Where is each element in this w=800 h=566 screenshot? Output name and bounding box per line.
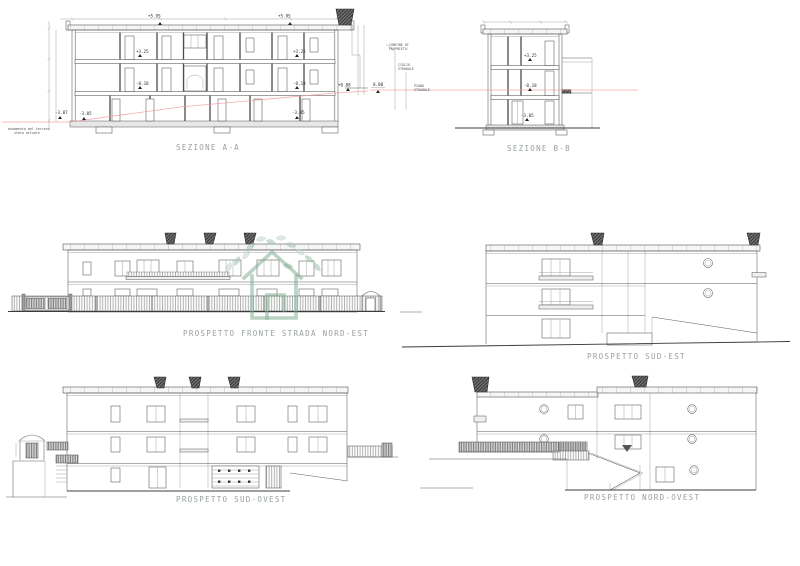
- terrain-slope-line: [290, 473, 348, 481]
- wall-right: [335, 30, 338, 122]
- balcony-slab: [539, 276, 593, 280]
- roof-slab: [63, 244, 360, 250]
- roof-slab: [63, 387, 348, 393]
- dim-label: -3.05: [521, 113, 534, 118]
- chimney: [472, 377, 489, 392]
- chimney: [165, 233, 176, 244]
- chimney: [336, 9, 354, 25]
- recess-slab: [180, 419, 208, 422]
- lower-terrace: [607, 317, 757, 345]
- chimney: [632, 376, 648, 387]
- dim-label: +3.25: [293, 49, 306, 54]
- footing: [322, 127, 338, 133]
- external-stair: [588, 445, 643, 490]
- dim-label: -3.07: [55, 110, 68, 115]
- roof-slab: [486, 245, 760, 251]
- elevation-nord-ovest: PROSPETTO NORD-OVEST: [420, 376, 757, 502]
- ciglio-note-2: STRADALE: [398, 67, 414, 71]
- top-row-windows: [111, 406, 327, 422]
- dim-label: +5.95: [148, 14, 161, 19]
- chimney: [154, 377, 166, 388]
- section-openings: [112, 35, 318, 121]
- dimension-chain-right: [352, 25, 364, 95]
- stairs: [56, 466, 67, 482]
- drawing-sheet: +5.95 +5.95 +3.25 +3.25 -0.18 -0.18 +0.0…: [0, 0, 800, 566]
- floor-slab: [75, 92, 335, 96]
- dim-label: +5.95: [278, 14, 291, 19]
- chimney: [189, 377, 201, 388]
- section-aa-title: SEZIONE A-A: [176, 143, 240, 152]
- footing: [556, 130, 567, 135]
- elevation-sud-ovest: PROSPETTO SUD-OVEST: [6, 377, 398, 504]
- window-stack: [539, 259, 593, 338]
- dim-label: -3.05: [79, 111, 92, 116]
- stair-railing: [56, 455, 78, 463]
- dim-label: -0.18: [524, 83, 537, 88]
- interior-walls: [110, 33, 304, 122]
- level-dimensions: +3.25 -0.18 -3.05: [521, 53, 537, 121]
- chimney: [591, 233, 604, 245]
- garage-door: [212, 466, 259, 488]
- side-balcony-slab: [752, 273, 766, 278]
- section-bb-title: SEZIONE B-B: [507, 144, 571, 153]
- ground-line: [402, 342, 790, 348]
- dim-label: +3.25: [136, 49, 149, 54]
- elevation-nord-ovest-title: PROSPETTO NORD-OVEST: [584, 493, 700, 502]
- slatted-door: [266, 466, 281, 488]
- floor-slab: [75, 60, 335, 64]
- balcony-railing: [127, 272, 229, 277]
- annex-railing: [47, 442, 68, 450]
- balcony-slab: [539, 305, 593, 309]
- footing: [96, 127, 112, 133]
- section-aa-drawing: +5.95 +5.95 +3.25 +3.25 -0.18 -0.18 +0.0…: [2, 9, 368, 152]
- wall-left: [72, 30, 75, 122]
- foundation-slab: [70, 121, 338, 127]
- piano-note-2: STRADALE: [414, 88, 430, 92]
- mid-row-windows: [111, 437, 327, 452]
- terrace-railings: [429, 442, 589, 460]
- annex-door: [26, 443, 38, 458]
- floor-slab: [491, 66, 559, 70]
- chimney: [747, 233, 760, 245]
- roof-slab: [483, 29, 567, 34]
- chimney: [228, 377, 240, 388]
- dim-label: -0.18: [293, 81, 306, 86]
- wall-ledge: [474, 416, 486, 422]
- dim-label: -0.18: [136, 81, 149, 86]
- chimney: [204, 233, 216, 244]
- zero-level-label: 0.00: [373, 82, 384, 87]
- elevation-nord-est-title: PROSPETTO FRONTE STRADA NORD-EST: [183, 329, 369, 338]
- dim-label: -3.85: [292, 110, 305, 115]
- elevation-nord-est: PROSPETTO FRONTE STRADA NORD-EST: [8, 233, 385, 338]
- round-windows: [704, 259, 713, 298]
- chimney: [244, 233, 256, 244]
- street-annotations: CONFINE DI PROPRIETA' CIGLIO STRADALE 0.…: [370, 43, 638, 110]
- roof-slab-right: [597, 387, 757, 393]
- lower-windows: [83, 289, 338, 296]
- roof-slab: [68, 25, 352, 30]
- wall-right: [559, 34, 562, 125]
- recess-slab: [180, 449, 208, 452]
- floor-slab: [491, 96, 559, 100]
- terrain-note-line2: stato attuale: [14, 131, 40, 135]
- confine-note-2: PROPRIETA': [389, 47, 409, 51]
- elevation-sud-ovest-title: PROSPETTO SUD-OVEST: [176, 495, 287, 504]
- dim-label: +3.25: [524, 53, 537, 58]
- elevation-sud-est-title: PROSPETTO SUD-EST: [587, 352, 686, 361]
- foundation-slab: [486, 125, 564, 130]
- annex-right: [562, 58, 592, 128]
- elevation-sud-est: PROSPETTO SUD-EST: [400, 233, 790, 361]
- right-terrace-railing: [347, 443, 398, 457]
- footing: [483, 130, 494, 135]
- dim-label: +0.08: [338, 83, 351, 88]
- section-bb-drawing: CONFINE DI PROPRIETA' CIGLIO STRADALE 0.…: [370, 21, 638, 154]
- roof-slab-left: [477, 392, 598, 397]
- footing: [214, 127, 230, 133]
- ground-row-openings: [111, 466, 281, 488]
- balcony-slab: [126, 277, 230, 280]
- wall-left: [488, 34, 491, 125]
